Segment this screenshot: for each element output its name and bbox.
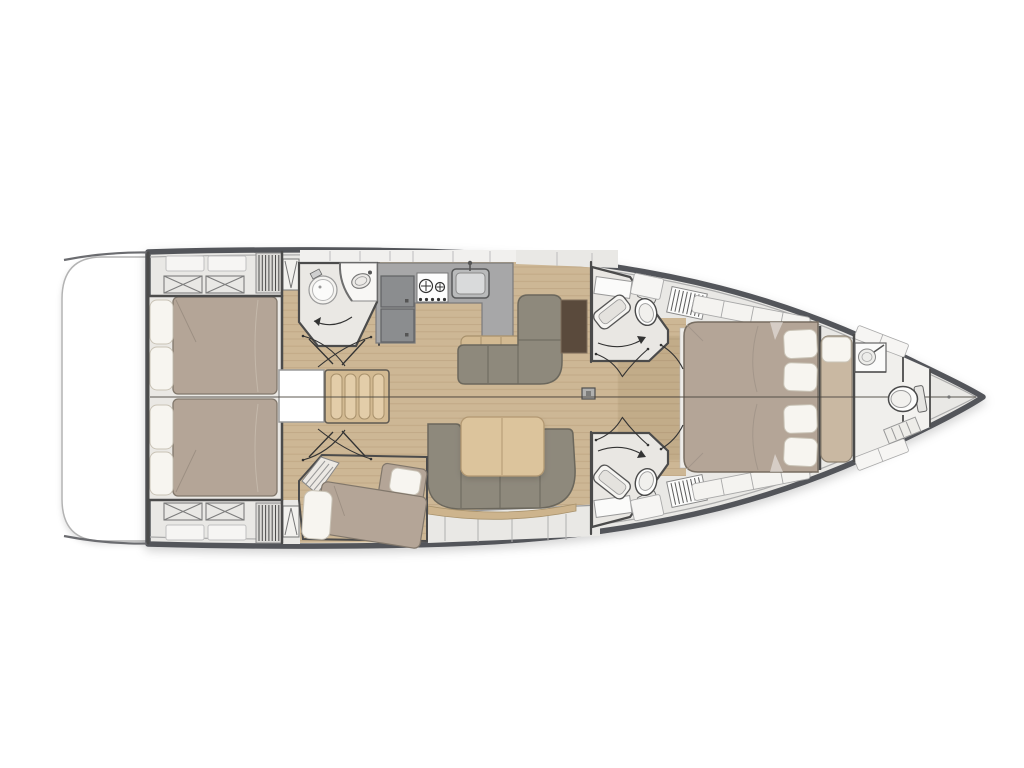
chart-table <box>561 300 587 353</box>
bow-mark <box>947 395 950 398</box>
pillow <box>784 362 818 391</box>
vent-grille <box>256 253 282 293</box>
pillow <box>150 300 173 344</box>
double-bed <box>173 297 277 394</box>
deck-locker <box>166 525 204 540</box>
swim-platform <box>62 257 148 541</box>
engine-hatch <box>279 370 324 422</box>
refrigerator <box>381 309 414 342</box>
bow-basin <box>855 343 886 372</box>
mid-cabin <box>299 455 428 549</box>
aft-cabin-starboard <box>150 399 277 496</box>
deck-locker <box>208 256 246 271</box>
deck-locker <box>208 525 246 540</box>
pillow <box>784 404 818 433</box>
deck-locker <box>166 256 204 271</box>
pillow <box>301 490 332 540</box>
deck-band-top <box>300 250 516 262</box>
pillow <box>150 405 173 449</box>
stove <box>417 273 448 302</box>
pillow <box>822 337 851 362</box>
salon-table <box>461 417 544 476</box>
bow-toilet <box>889 385 928 412</box>
pillow <box>150 347 173 390</box>
pillow <box>389 467 422 495</box>
double-bed <box>173 399 277 496</box>
yacht-floorplan-canvas <box>0 0 1024 768</box>
refrigerator <box>381 276 414 307</box>
pillow <box>150 452 173 495</box>
vent-grille <box>256 503 282 543</box>
yacht-floorplan <box>0 0 1024 768</box>
pillow <box>783 329 817 359</box>
pillow <box>783 437 817 467</box>
